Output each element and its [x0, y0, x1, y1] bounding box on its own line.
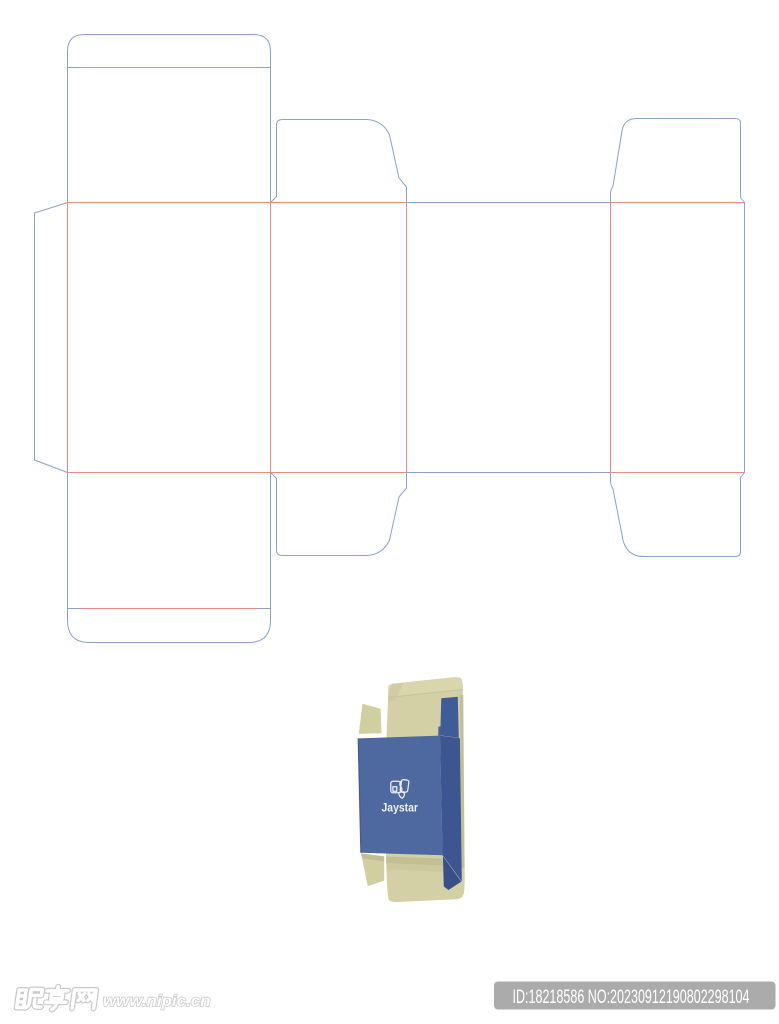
svg-text:Jaystar: Jaystar — [382, 803, 419, 815]
svg-text:ID:18218586 NO:202309121908022: ID:18218586 NO:20230912190802298104 — [513, 987, 750, 1008]
svg-text:www.nipic.cn: www.nipic.cn — [103, 993, 211, 1010]
